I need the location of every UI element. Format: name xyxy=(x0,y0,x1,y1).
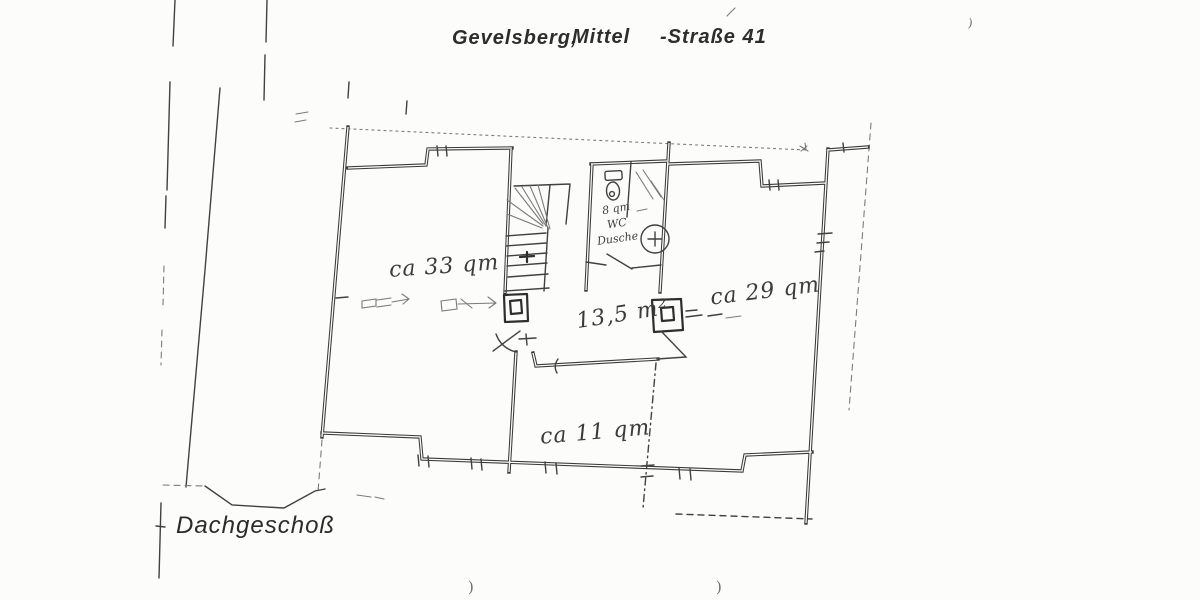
door-swing-right xyxy=(657,331,686,359)
staircase xyxy=(505,184,570,291)
dormer-outline xyxy=(205,486,325,508)
floor-plan-drawing xyxy=(0,0,1200,600)
bathroom-door xyxy=(586,254,661,269)
hall-ledge-mark xyxy=(519,334,536,345)
scan-edge-artifacts xyxy=(156,0,735,578)
roof-edge-line-left xyxy=(186,88,220,487)
sketch-annotation-center xyxy=(441,297,496,311)
chimney-side-dashes xyxy=(686,310,741,318)
toilet-icon xyxy=(605,171,622,201)
door-swing-left xyxy=(493,331,520,352)
scan-mark-bottom-left: ) xyxy=(468,578,474,596)
plan-title-number: -Straße 41 xyxy=(660,26,767,49)
scan-mark-bottom-right: ) xyxy=(716,578,722,596)
scanned-floorplan-page: Gevelsberg, Mittel -Straße 41 ca 33 qm c… xyxy=(0,0,1200,600)
chimney-left-icon xyxy=(504,294,528,322)
bathroom-wc-label: WC xyxy=(606,216,627,232)
plan-title-street: Mittel xyxy=(572,26,630,49)
floor-name-label: Dachgeschoß xyxy=(176,512,335,540)
bathroom xyxy=(586,162,669,269)
sketch-annotation-left xyxy=(362,294,409,308)
plan-title-city: Gevelsberg, xyxy=(452,27,578,50)
sloped-ceiling-hatch xyxy=(636,170,664,211)
